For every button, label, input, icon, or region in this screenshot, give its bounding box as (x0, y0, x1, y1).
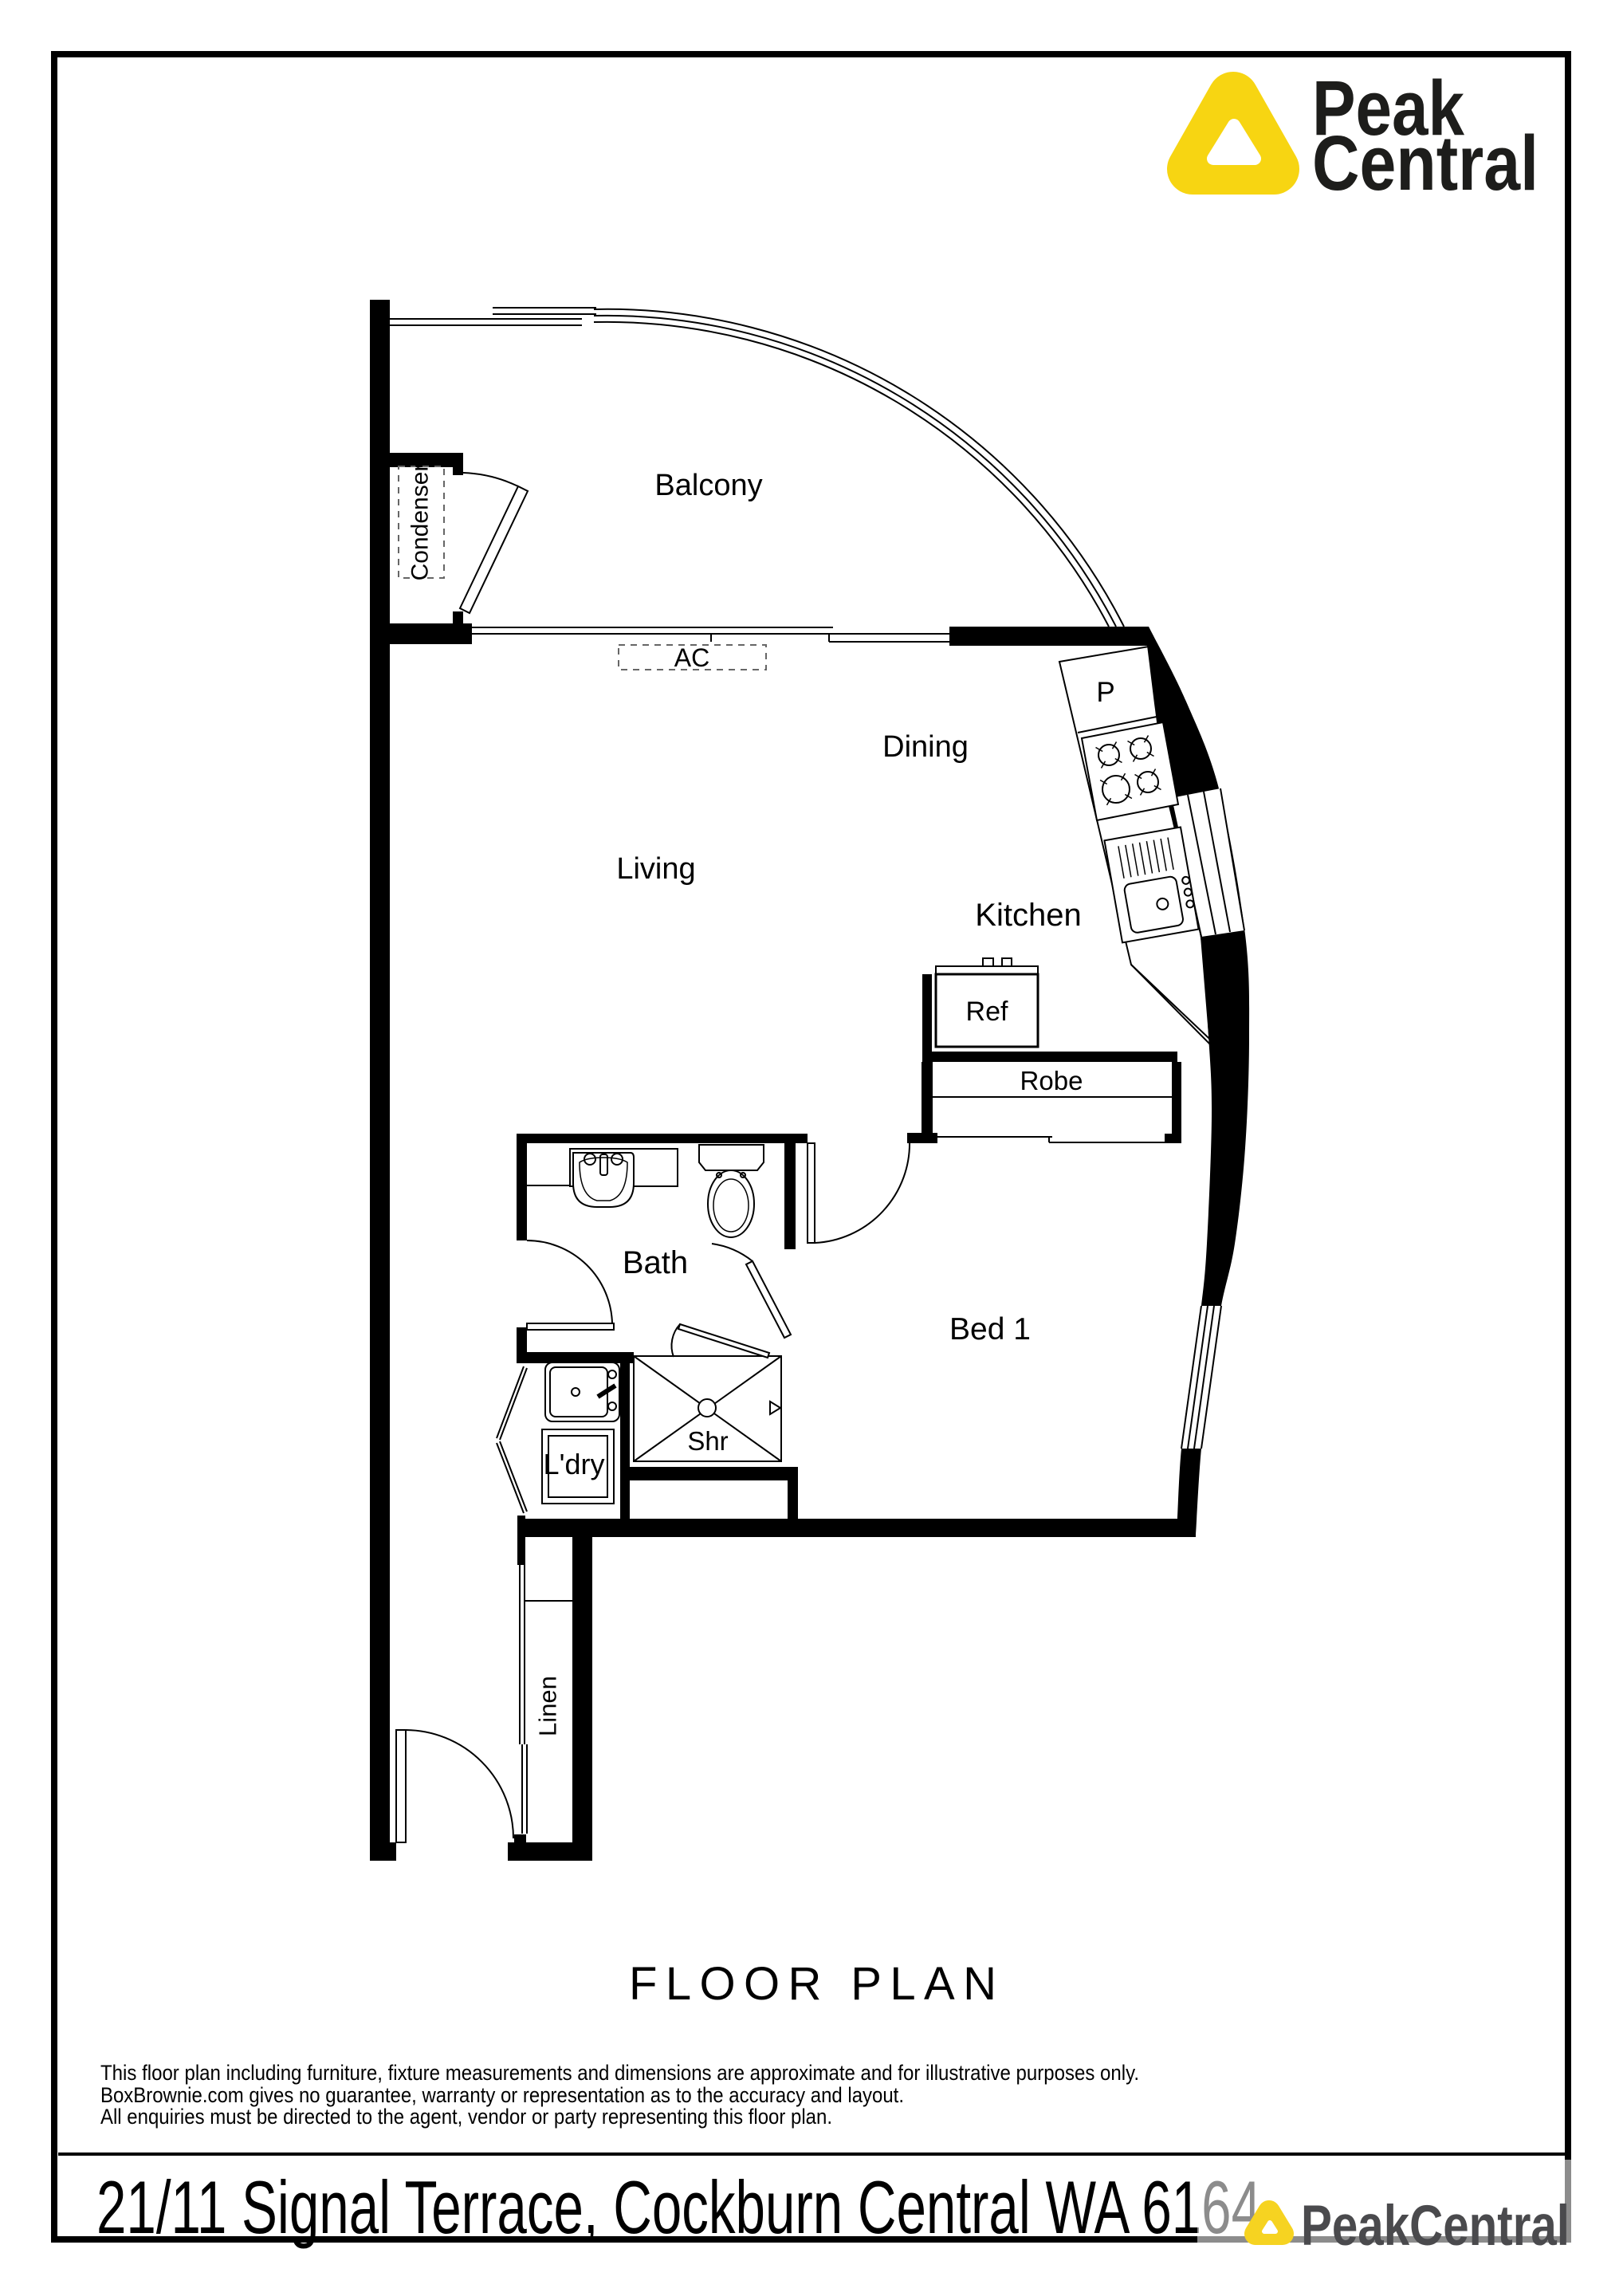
svg-text:FLOOR PLAN: FLOOR PLAN (629, 1958, 996, 2010)
svg-text:Linen: Linen (534, 1676, 562, 1736)
svg-text:21/11 Signal Terrace, Cockburn: 21/11 Signal Terrace, Cockburn Central W… (96, 2165, 1261, 2249)
svg-text:Balcony: Balcony (654, 469, 762, 502)
svg-text:L'dry: L'dry (544, 1448, 605, 1480)
svg-text:Kitchen: Kitchen (975, 898, 1081, 933)
svg-text:Dining: Dining (882, 730, 969, 764)
svg-text:P: P (1096, 677, 1114, 708)
svg-text:Ref: Ref (966, 997, 1008, 1027)
svg-text:Bed 1: Bed 1 (949, 1312, 1031, 1347)
svg-text:Bath: Bath (623, 1245, 688, 1280)
svg-text:All enquiries must be directed: All enquiries must be directed to the ag… (100, 2105, 832, 2129)
svg-text:Condenser: Condenser (407, 464, 434, 581)
svg-text:BoxBrownie.com gives no guaran: BoxBrownie.com gives no guarantee, warra… (100, 2083, 904, 2107)
svg-text:Central: Central (1312, 120, 1539, 206)
svg-text:This floor plan including furn: This floor plan including furniture, fix… (100, 2061, 1139, 2085)
svg-text:AC: AC (674, 643, 709, 672)
svg-text:Living: Living (616, 852, 695, 886)
svg-text:Shr: Shr (687, 1426, 728, 1456)
svg-text:PeakCentral: PeakCentral (1301, 2195, 1570, 2258)
svg-text:Robe: Robe (1020, 1066, 1083, 1095)
